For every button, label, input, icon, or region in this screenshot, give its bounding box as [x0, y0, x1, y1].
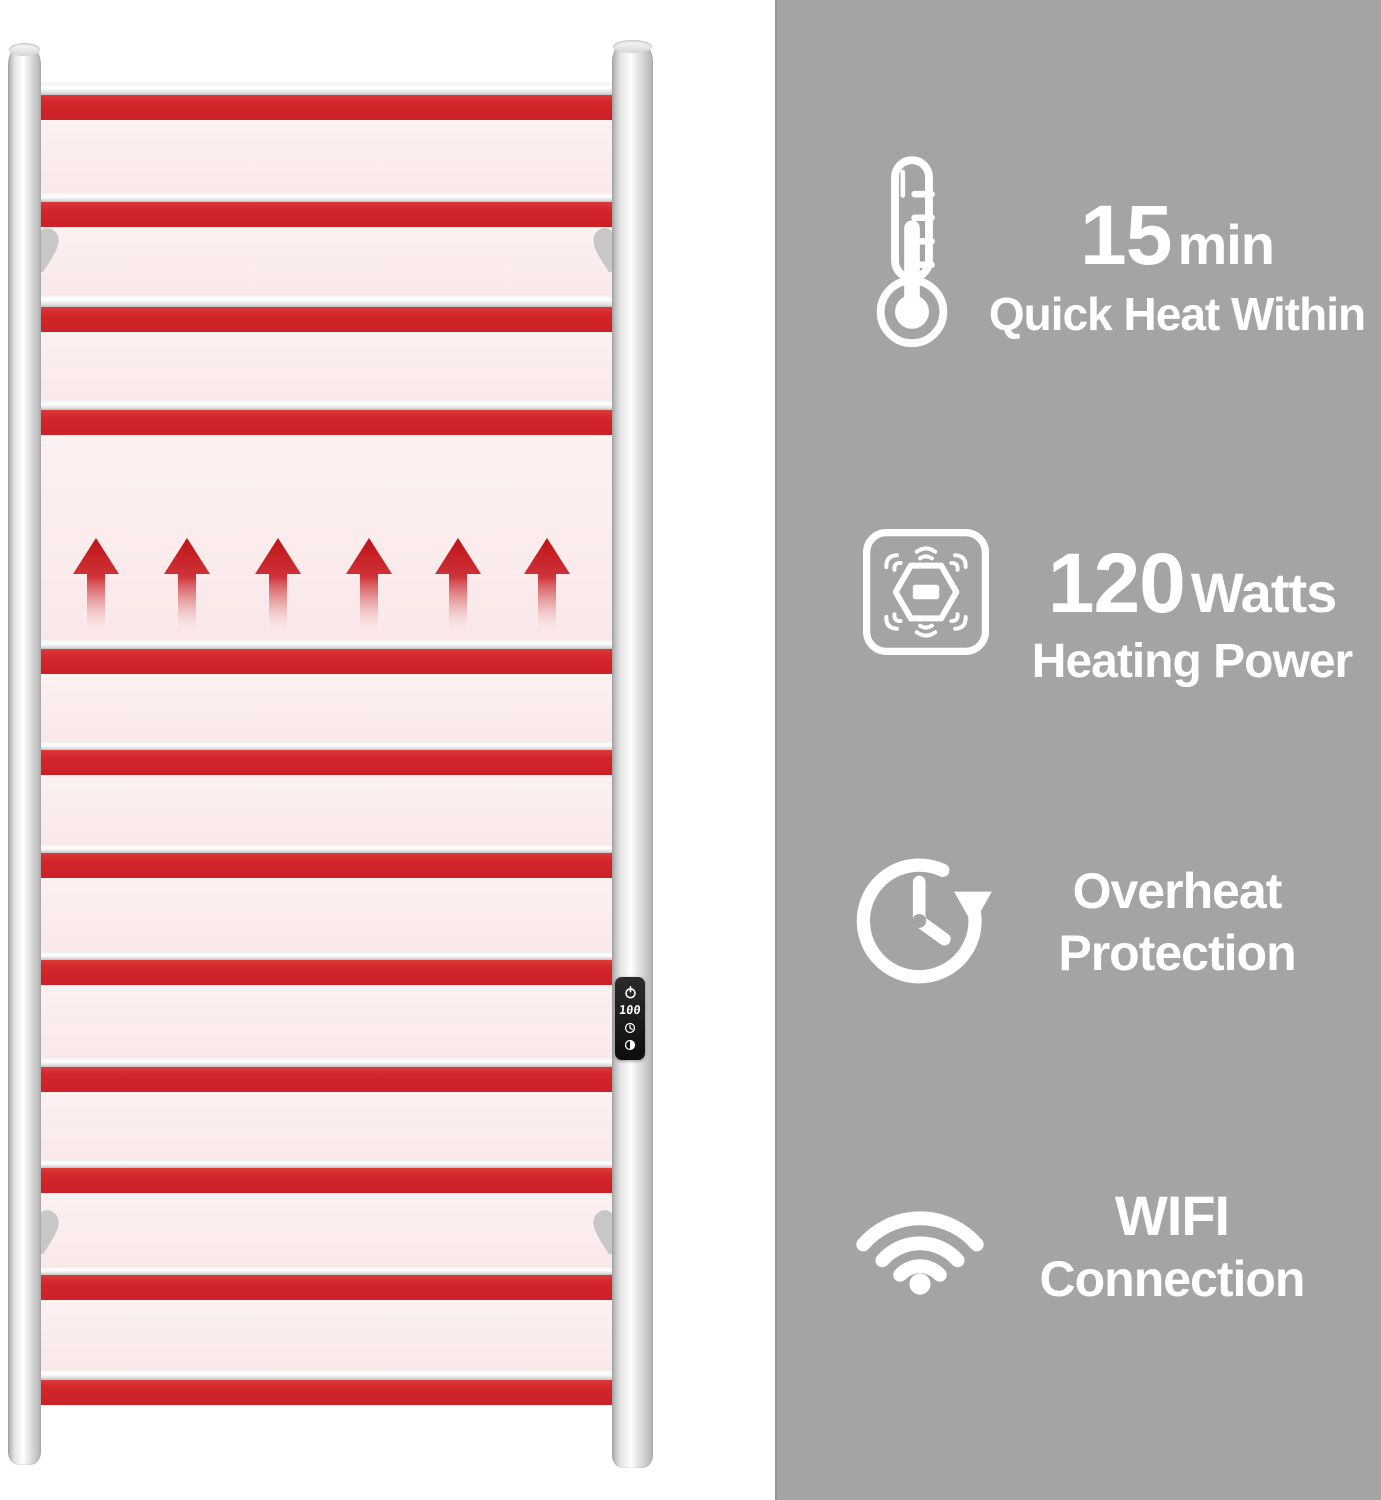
heat-level-icon [624, 1039, 636, 1051]
heat-glow-panel [35, 985, 617, 1058]
heating-power-unit: Watts [1191, 561, 1336, 624]
heated-red-bar [35, 410, 617, 435]
heat-arrow-icon [435, 538, 481, 630]
heated-red-bar [35, 853, 617, 878]
wall-bracket [592, 227, 614, 273]
heated-red-bar [35, 649, 617, 674]
heating-power-value-line: 120Watts [1012, 533, 1372, 633]
heating-power-icon [860, 526, 992, 658]
rung-chrome-bar [35, 1160, 617, 1168]
rung-chrome-bar [35, 845, 617, 853]
rung-chrome-bar [35, 193, 617, 202]
heat-glow-panel [35, 674, 617, 742]
overheat-text: Overheat Protection [1017, 860, 1337, 984]
heated-red-bar [35, 1380, 617, 1405]
feature-heating-power: 120Watts Heating Power [777, 518, 1381, 698]
heat-rising-arrows [35, 538, 617, 630]
wifi-line2: Connection [1007, 1249, 1337, 1309]
heat-arrow-icon [255, 538, 301, 630]
wifi-icon [854, 1185, 986, 1296]
heated-red-bar [35, 1275, 617, 1300]
heat-arrow-icon [346, 538, 392, 630]
feature-overheat-protection: Overheat Protection [777, 845, 1381, 1005]
heat-glow-panel [35, 227, 617, 295]
heated-red-bar [35, 95, 617, 120]
rung-chrome-bar [35, 640, 617, 649]
rung-chrome-bar [35, 295, 617, 307]
wall-bracket [38, 227, 60, 273]
heated-red-bar [35, 307, 617, 332]
quick-heat-value: 15 [1080, 188, 1171, 282]
rung-chrome-bar [35, 1370, 617, 1380]
right-rail [612, 40, 653, 1468]
feature-panel: 15min Quick Heat Within 120Watts Heating… [775, 0, 1381, 1500]
quick-heat-unit: min [1177, 213, 1274, 276]
heating-power-label: Heating Power [1012, 633, 1372, 691]
rung-chrome-bar [35, 1058, 617, 1067]
left-rail [8, 43, 41, 1465]
heating-power-value: 120 [1048, 536, 1185, 630]
rung-chrome-bar [35, 742, 617, 750]
heat-arrow-icon [164, 538, 210, 630]
heating-power-text: 120Watts Heating Power [1012, 533, 1372, 691]
rung-chrome-bar [35, 1267, 617, 1275]
feature-quick-heat: 15min Quick Heat Within [777, 150, 1381, 370]
quick-heat-value-line: 15min [977, 185, 1377, 285]
rung-chrome-bar [35, 952, 617, 960]
heat-glow-panel [35, 775, 617, 845]
wall-bracket [592, 1209, 614, 1255]
product-infographic: 100 15min Quick Hea [0, 0, 1381, 1500]
heat-glow-panel [35, 1300, 617, 1370]
rung-chrome-bar [35, 400, 617, 410]
heat-glow-panel [35, 878, 617, 952]
overheat-line1: Overheat [1017, 860, 1337, 922]
heated-red-bar [35, 1067, 617, 1092]
control-panel: 100 [615, 977, 645, 1060]
power-icon [624, 986, 637, 999]
heat-glow-panel [35, 1092, 617, 1160]
heat-glow-panel [35, 120, 617, 193]
heated-red-bar [35, 1168, 617, 1193]
rung-chrome-bar [35, 83, 617, 95]
heated-red-bar [35, 960, 617, 985]
heat-arrow-icon [524, 538, 570, 630]
heated-red-bar [35, 750, 617, 775]
overheat-clock-icon [848, 848, 996, 994]
wifi-line1: WIFI [1007, 1183, 1337, 1249]
feature-wifi-connection: WIFI Connection [777, 1178, 1381, 1318]
heat-glow-panel [35, 1193, 617, 1267]
quick-heat-text: 15min Quick Heat Within [977, 185, 1377, 343]
heat-glow-panel [35, 332, 617, 400]
heated-red-bar [35, 202, 617, 227]
control-display: 100 [619, 1004, 642, 1016]
wifi-text: WIFI Connection [1007, 1183, 1337, 1309]
clock-timer-icon [624, 1022, 636, 1034]
towel-warmer-illustration: 100 [0, 0, 775, 1500]
wall-bracket [38, 1209, 60, 1255]
quick-heat-label: Quick Heat Within [977, 285, 1377, 343]
thermometer-icon [874, 155, 950, 351]
heat-arrow-icon [73, 538, 119, 630]
overheat-line2: Protection [1017, 922, 1337, 984]
